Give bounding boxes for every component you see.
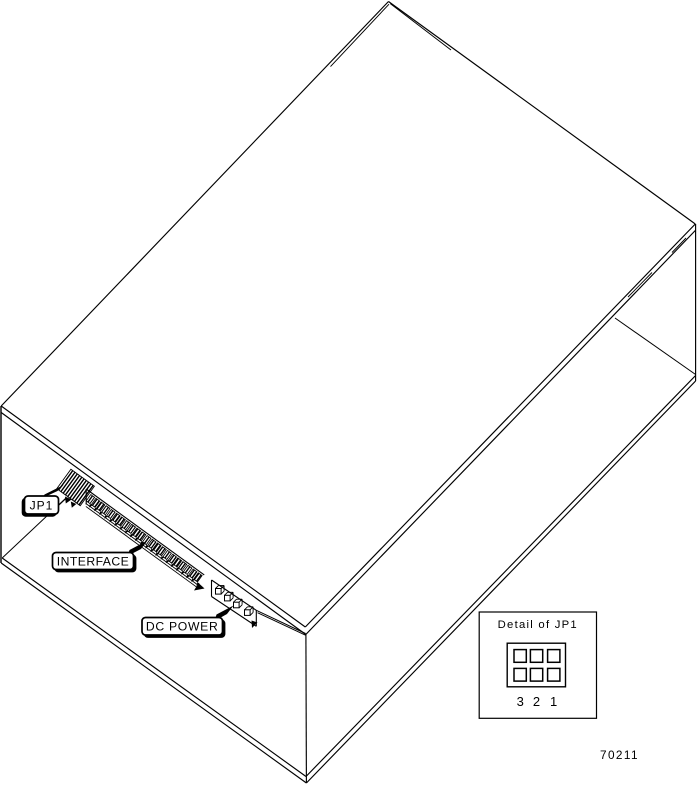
svg-text:2: 2 [533, 694, 540, 709]
svg-text:3: 3 [517, 694, 524, 709]
svg-text:1: 1 [550, 694, 557, 709]
svg-text:INTERFACE: INTERFACE [57, 554, 129, 568]
svg-text:70211: 70211 [600, 748, 639, 762]
svg-text:DC POWER: DC POWER [146, 620, 219, 634]
svg-text:Detail of JP1: Detail of JP1 [498, 619, 578, 631]
svg-text:JP1: JP1 [30, 498, 54, 512]
